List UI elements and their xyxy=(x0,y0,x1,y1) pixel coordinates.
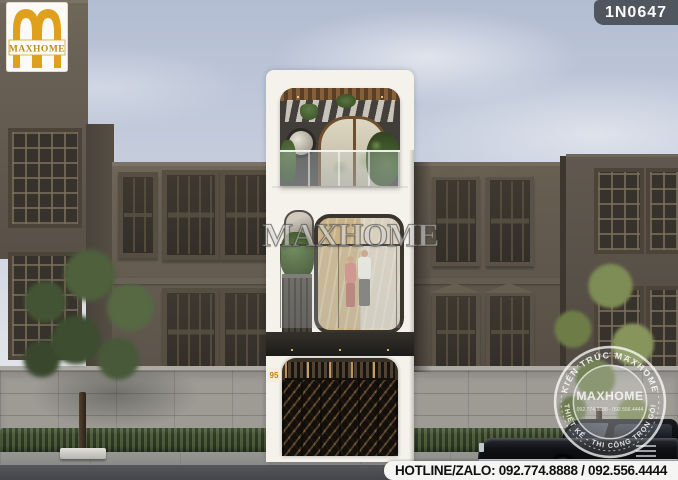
car-headlight xyxy=(479,443,484,452)
stamp-phone-text: 092.774.8888 - 092.556.4444 xyxy=(577,407,644,413)
house-number-plate: 95 xyxy=(267,368,281,382)
gate-top-grille xyxy=(285,362,395,380)
approval-stamp: KIẾN TRÚC MAXHOME THIẾT KẾ - THI CÔNG TR… xyxy=(552,344,668,460)
center-watermark: MAXHOME xyxy=(262,220,432,253)
maxhome-logo: MAXHOME xyxy=(6,2,68,72)
window-pediment xyxy=(432,176,480,266)
glass-railing xyxy=(280,150,400,186)
window-pediment xyxy=(432,292,480,372)
maxhome-logo-icon: MAXHOME xyxy=(6,2,68,72)
floor-slab-line xyxy=(272,186,408,188)
stamp-seal-icon: KIẾN TRÚC MAXHOME THIẾT KẾ - THI CÔNG TR… xyxy=(552,344,668,460)
tree-left-base xyxy=(60,448,106,459)
hotline-text: HOTLINE/ZALO: 092.774.8888 / 092.556.444… xyxy=(395,463,667,478)
design-code-badge: 1N0647 xyxy=(594,0,678,25)
facade-dark-band xyxy=(266,332,414,356)
potted-plant xyxy=(336,94,356,108)
hanging-plant xyxy=(300,104,318,120)
rooftop-terrace xyxy=(280,88,400,186)
stamp-center-text: MAXHOME xyxy=(576,389,643,403)
house-number: 95 xyxy=(270,371,279,380)
townhouse-facade: 95 xyxy=(266,70,414,462)
window-grid xyxy=(8,128,82,228)
tree-left-foliage xyxy=(8,222,178,412)
gate-chevron-pattern xyxy=(282,380,398,456)
entrance-gate xyxy=(282,358,398,456)
window-pediment xyxy=(486,292,534,372)
hotline-bar: HOTLINE/ZALO: 092.774.8888 / 092.556.444… xyxy=(384,461,678,480)
logo-text: MAXHOME xyxy=(9,45,65,55)
architectural-render: 95 MAXHOME 1N0647 MAXHOME xyxy=(0,0,678,480)
hedge-left xyxy=(0,428,268,454)
design-code: 1N0647 xyxy=(605,4,667,22)
window-pediment xyxy=(486,176,534,266)
glass-railing xyxy=(280,244,400,328)
